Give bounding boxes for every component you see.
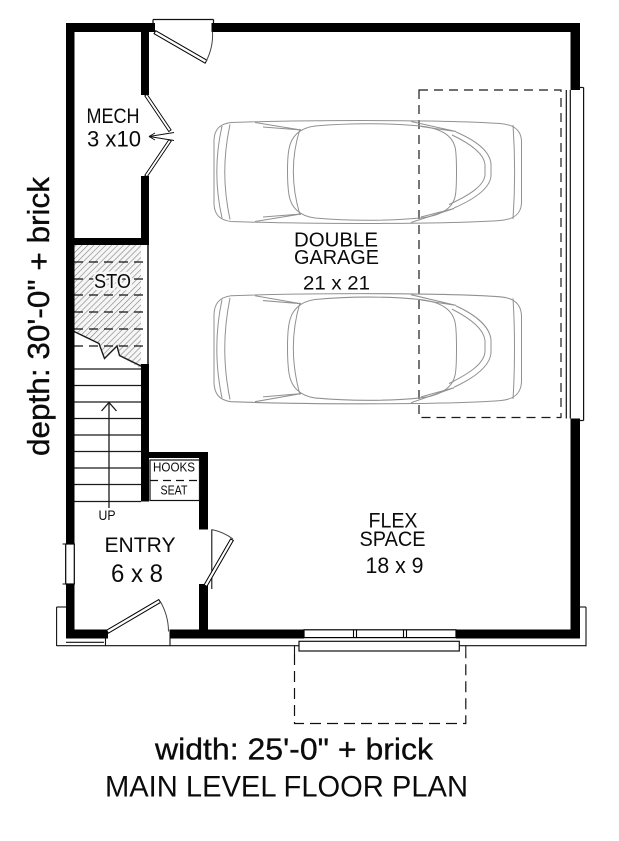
svg-text:SPACE: SPACE xyxy=(360,528,426,551)
svg-text:ENTRY: ENTRY xyxy=(105,534,176,557)
svg-text:MECH: MECH xyxy=(87,105,140,128)
svg-text:width: 25'-0" + brick: width: 25'-0" + brick xyxy=(154,732,434,767)
svg-text:depth: 30'-0" + brick: depth: 30'-0" + brick xyxy=(21,177,56,456)
svg-text:HOOKS: HOOKS xyxy=(153,461,195,475)
svg-text:6 x 8: 6 x 8 xyxy=(111,560,163,588)
svg-text:GARAGE: GARAGE xyxy=(294,247,379,269)
svg-text:MAIN LEVEL FLOOR PLAN: MAIN LEVEL FLOOR PLAN xyxy=(105,771,468,804)
svg-text:SEAT: SEAT xyxy=(161,484,188,498)
svg-text:18 x 9: 18 x 9 xyxy=(366,553,424,578)
svg-text:3 x10: 3 x10 xyxy=(87,127,141,152)
svg-text:21 x 21: 21 x 21 xyxy=(303,274,370,295)
svg-text:STO: STO xyxy=(94,271,131,293)
svg-text:UP: UP xyxy=(99,507,116,523)
